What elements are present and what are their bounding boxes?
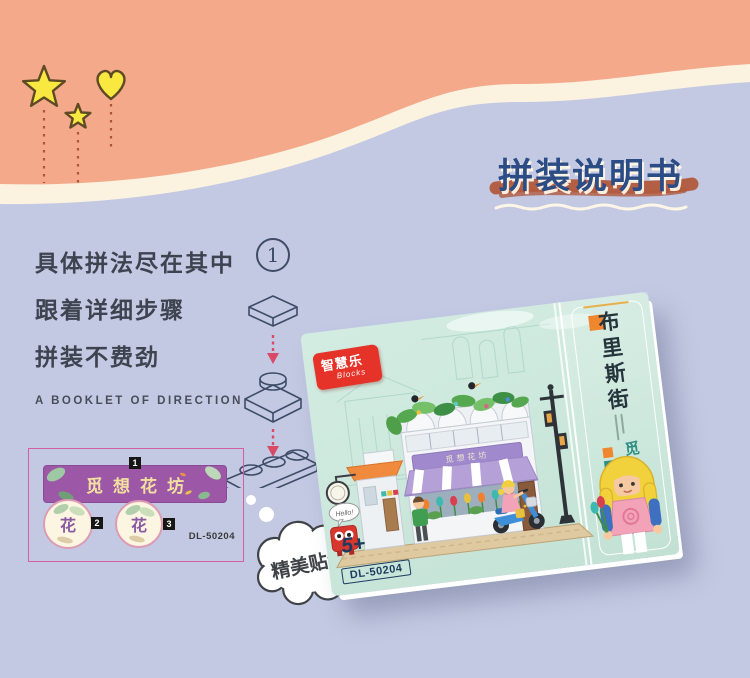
headline-block: 拼装说明书 [488, 148, 708, 218]
intro-line-2: 跟着详细步骤 [35, 287, 243, 334]
page-title: 拼装说明书 [498, 148, 708, 199]
banner-sticker: 觅想花坊 [43, 465, 227, 503]
product-box: 智慧乐 Blocks 布里斯街 觅想花坊 [300, 292, 680, 597]
flower-character: 花 [60, 512, 76, 536]
intro-copy: 具体拼法尽在其中 跟着详细步骤 拼装不费劲 A BOOKLET OF DIREC… [35, 240, 243, 407]
arrow-down-icon [267, 335, 279, 364]
sticker-tag-1: 1 [129, 457, 141, 469]
panel-gold-accent [583, 301, 629, 309]
intro-line-1: 具体拼法尽在其中 [35, 240, 243, 287]
sticker-sheet: 觅想花坊 1 花 2 花 3 DL-50204 [28, 448, 244, 562]
round-sticker-1: 花 [43, 499, 93, 549]
leaf-decoration [203, 465, 223, 482]
brick-one-stud-icon [245, 373, 301, 422]
round-sticker-2: 花 [115, 500, 163, 548]
grass-decoration [57, 535, 74, 544]
promo-page: 拼装说明书 具体拼法尽在其中 跟着详细步骤 拼装不费劲 A BOOKLET OF… [0, 0, 750, 678]
leaf-decoration [45, 465, 68, 484]
sticker-sheet-code: DL-50204 [189, 531, 235, 542]
thought-dot-small [246, 495, 256, 505]
arrow-down-icon [267, 429, 279, 457]
street-lamp [538, 383, 579, 525]
banner-sticker-text: 觅想花坊 [86, 472, 194, 497]
age-badge: 5+ [340, 532, 367, 559]
step-number: 1 [267, 243, 280, 267]
brick-tile-icon [249, 296, 297, 326]
intro-line-3: 拼装不费劲 [35, 334, 243, 381]
leaf-decoration [197, 491, 210, 501]
girl-minifigure [581, 447, 677, 562]
sticker-tag-3: 3 [163, 518, 175, 530]
intro-caption: A BOOKLET OF DIRECTION [35, 395, 243, 407]
sticker-tag-2: 2 [91, 517, 103, 529]
